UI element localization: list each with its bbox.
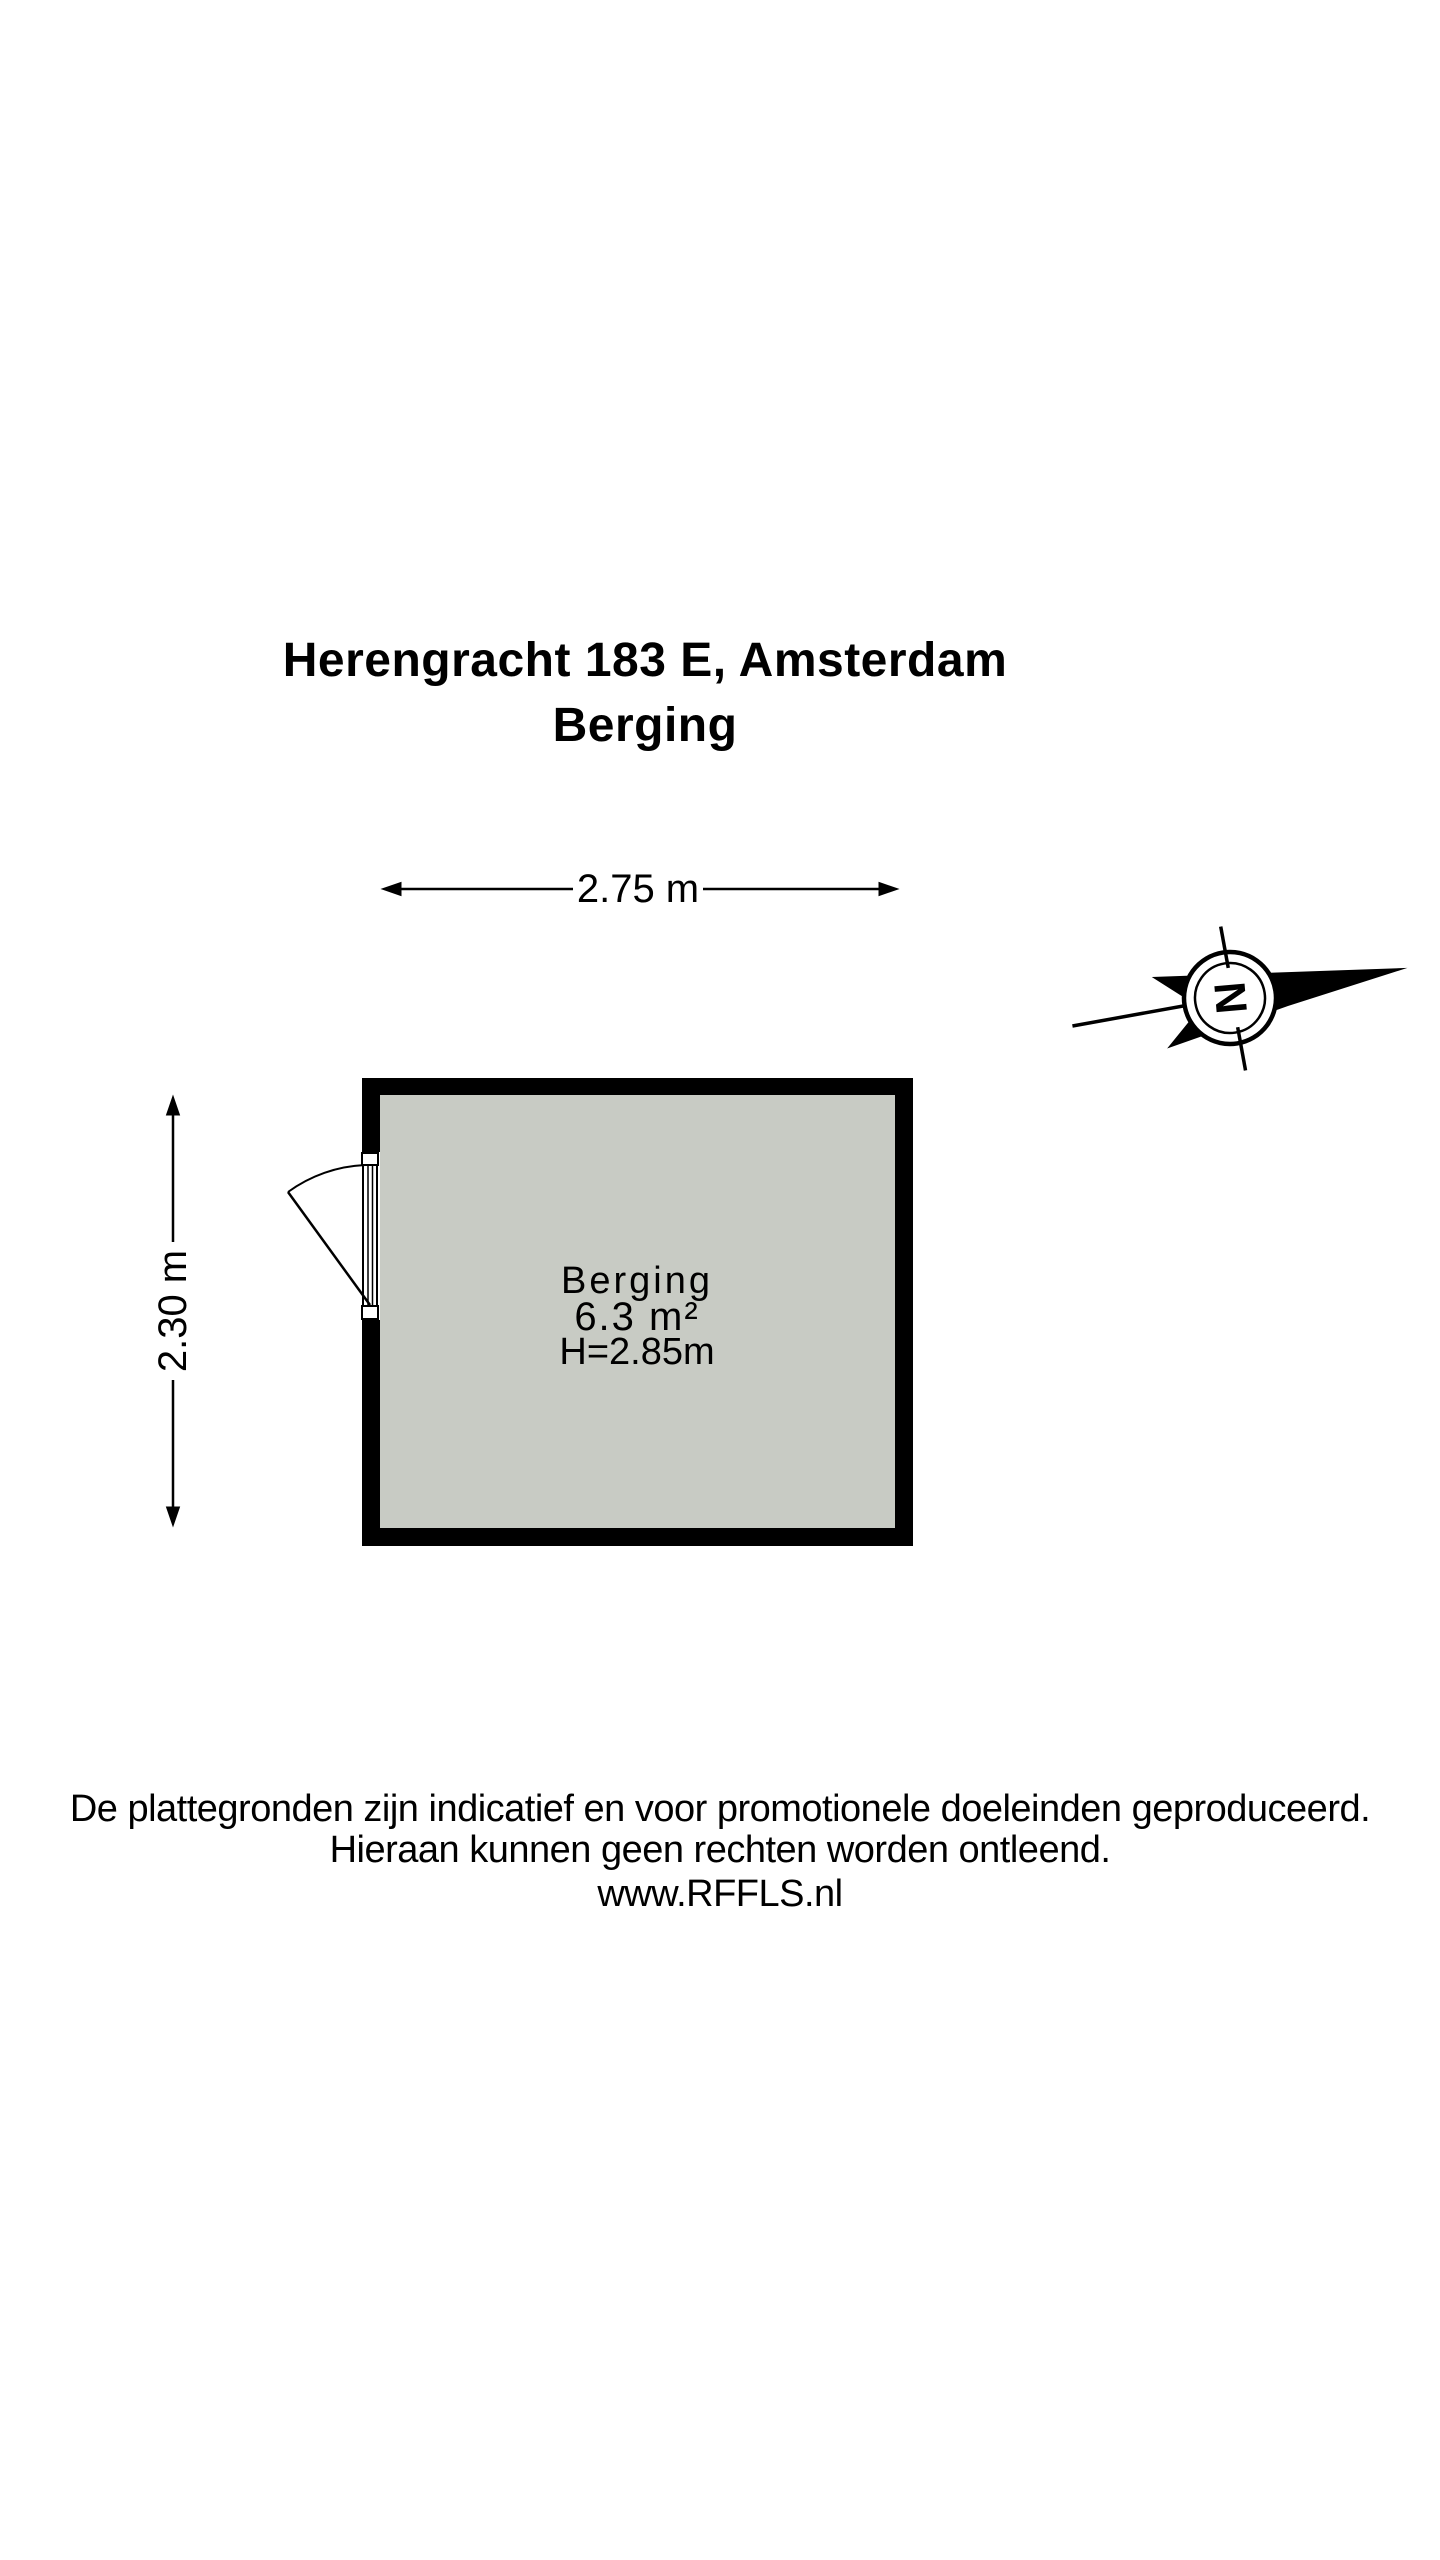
compass: N [1061,899,1420,1096]
dimension-depth-label: 2.30 m [151,1111,195,1511]
floorplan-page: N Herengracht 183 E, Amsterdam Berging 2… [0,0,1440,2560]
door-jamb-top [362,1153,378,1165]
page-title-room: Berging [0,693,1290,758]
door-panel [363,1165,377,1306]
room-area-label: 6.3 m² [437,1299,837,1335]
room-name-label: Berging [437,1263,837,1299]
compass-letter: N [1204,980,1256,1016]
width-dim-arrow-right [879,883,898,896]
footer-website: www.RFFLS.nl [0,1874,1440,1915]
dimension-width-label: 2.75 m [438,867,838,911]
width-dim-arrow-left [382,883,401,896]
room-ceiling-height-label: H=2.85m [437,1334,837,1370]
door-swing-arc [288,1165,365,1192]
footer-disclaimer-line-1: De plattegronden zijn indicatief en voor… [0,1789,1440,1830]
footer-disclaimer-line-2: Hieraan kunnen geen rechten worden ontle… [0,1830,1440,1871]
door-jamb-bottom [362,1306,378,1319]
page-title-address: Herengracht 183 E, Amsterdam [0,628,1290,693]
